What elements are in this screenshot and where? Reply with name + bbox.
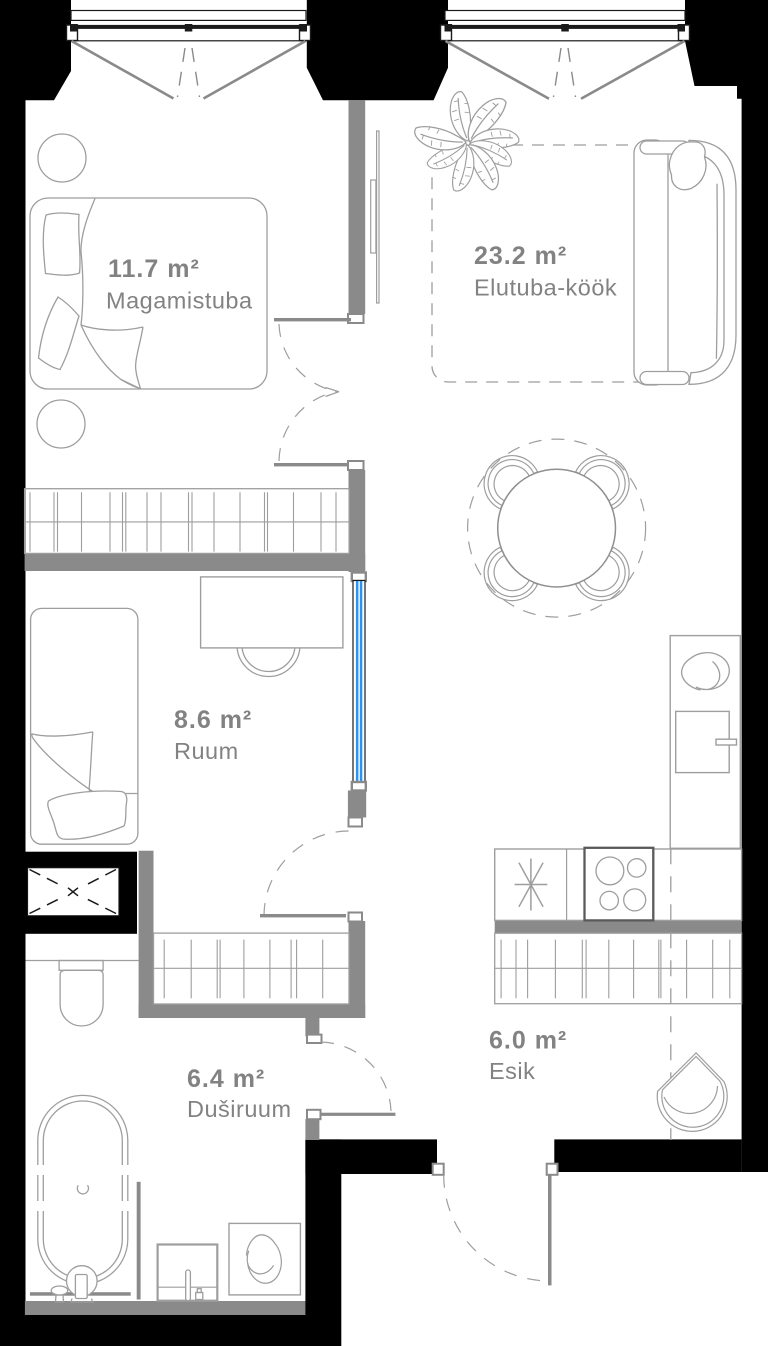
svg-text:Duširuum: Duširuum xyxy=(187,1096,292,1122)
svg-text:23.2 m²: 23.2 m² xyxy=(474,242,567,270)
svg-text:6.0 m²: 6.0 m² xyxy=(489,1027,567,1055)
svg-text:11.7 m²: 11.7 m² xyxy=(108,255,200,283)
svg-text:Esik: Esik xyxy=(489,1058,535,1084)
svg-text:6.4 m²: 6.4 m² xyxy=(187,1065,265,1093)
svg-text:Magamistuba: Magamistuba xyxy=(106,288,253,314)
svg-text:Elutuba-köök: Elutuba-köök xyxy=(474,274,617,300)
svg-text:8.6 m²: 8.6 m² xyxy=(174,706,252,734)
svg-text:Ruum: Ruum xyxy=(174,738,239,764)
